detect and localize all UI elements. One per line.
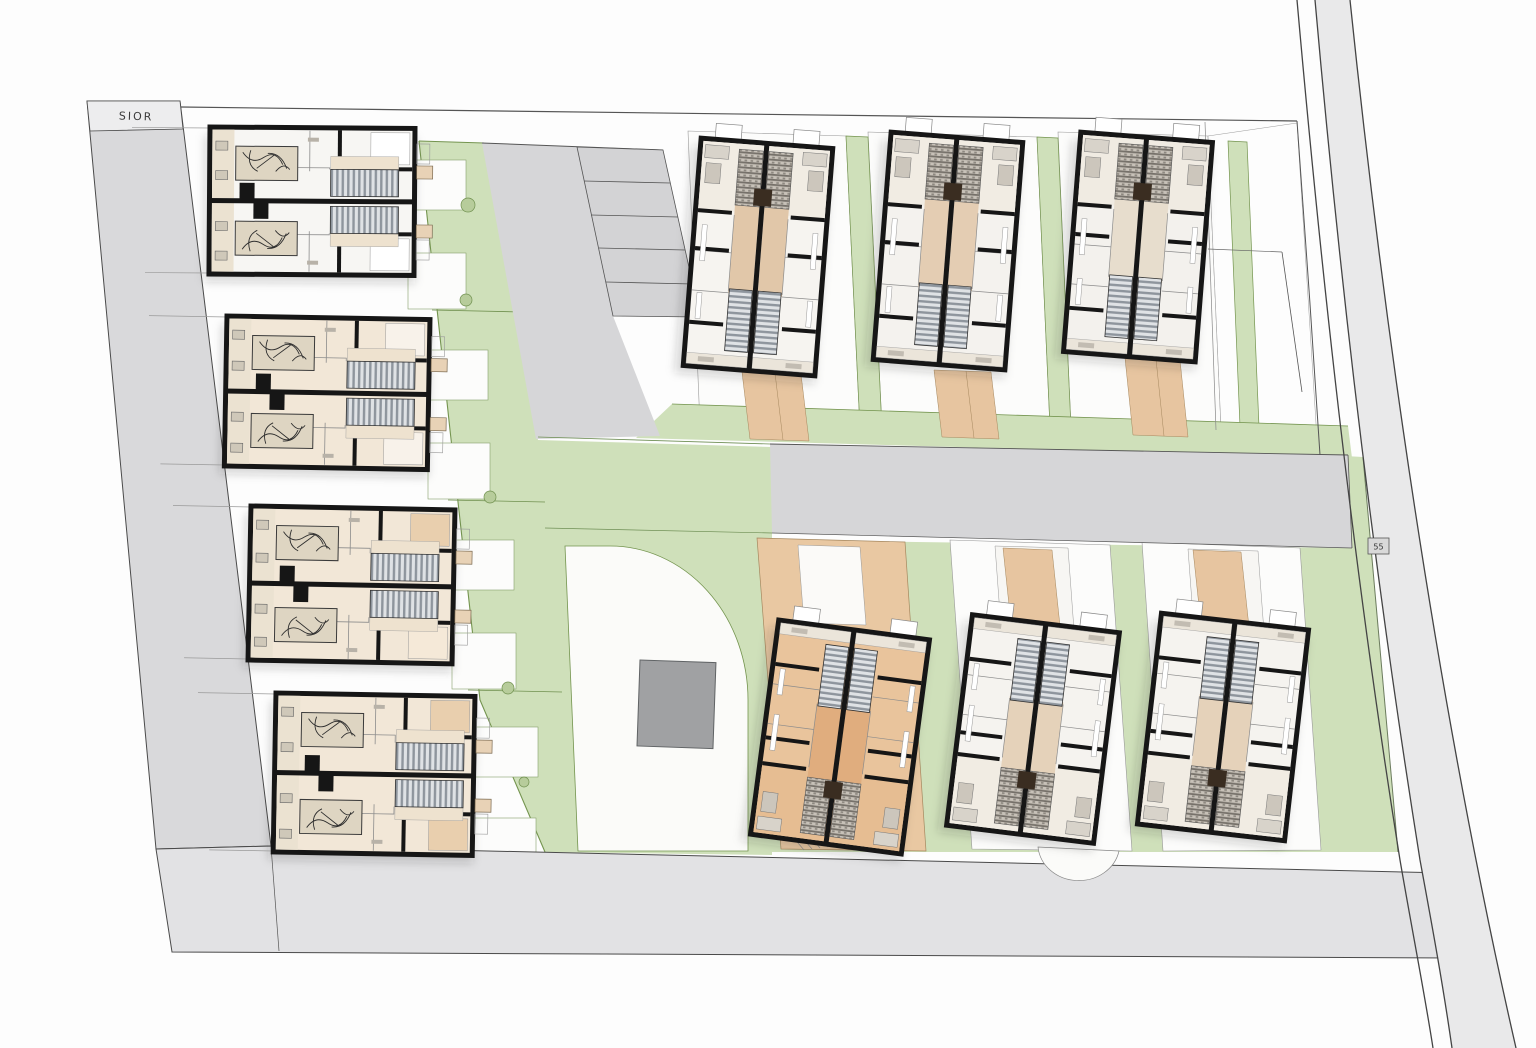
site-plan: SIOR 55 (0, 0, 1536, 1048)
wardrobe (216, 141, 228, 150)
walkway-n3 (1125, 358, 1188, 437)
walkway-n2 (934, 370, 999, 439)
wardrobe (232, 361, 244, 370)
building-plan-S2 (938, 598, 1122, 851)
patio-notch (408, 253, 466, 309)
patio-notch (474, 818, 536, 856)
stairs (330, 206, 398, 233)
stairs (346, 398, 414, 426)
entry-step (431, 359, 447, 372)
garden-shed-body (637, 660, 716, 749)
wardrobe (281, 743, 293, 752)
building-plan-S3 (1129, 597, 1311, 849)
chimney (256, 374, 271, 390)
bush (460, 294, 472, 306)
stairs (943, 285, 971, 349)
wardrobe (280, 794, 292, 803)
stairs (396, 743, 464, 771)
chimney (280, 566, 295, 582)
plot-marker-label: 55 (1373, 543, 1383, 552)
site-plan-canvas: SIOR 55 (0, 0, 1536, 1048)
wardrobe (256, 553, 268, 562)
chimney (823, 780, 843, 799)
wardrobe (254, 637, 266, 646)
building-plan-N2 (865, 116, 1024, 378)
bed (276, 525, 339, 560)
stairs (725, 289, 753, 353)
bed (251, 413, 314, 448)
bed (235, 221, 297, 255)
bed (252, 335, 315, 370)
chimney (293, 586, 308, 602)
stairs (347, 361, 415, 389)
entry-step (430, 418, 446, 431)
entry-step (475, 799, 491, 812)
bush (502, 682, 514, 694)
bed (236, 146, 298, 180)
entry-step (456, 551, 472, 564)
bush (461, 198, 475, 212)
building-plan-S1 (742, 603, 932, 862)
chimney (253, 203, 268, 219)
patio-notch (452, 633, 516, 689)
building-plan-N1 (675, 122, 834, 384)
bed (300, 799, 363, 834)
wardrobe (255, 604, 267, 613)
wardrobe (215, 251, 227, 260)
chimney (305, 755, 320, 771)
stairs (915, 283, 943, 347)
patio-notch (452, 540, 514, 590)
chimney (269, 394, 284, 410)
chimney (1207, 769, 1227, 788)
chimney (753, 189, 772, 207)
wardrobe (216, 171, 228, 180)
road-link-east (770, 444, 1352, 548)
chimney (1017, 771, 1037, 790)
chimney (1133, 182, 1152, 200)
wardrobe (231, 443, 243, 452)
bed (301, 712, 364, 747)
bush (484, 491, 496, 503)
entry-step (455, 610, 471, 623)
wardrobe (231, 412, 243, 421)
stairs (753, 291, 781, 355)
stairs (331, 169, 399, 196)
wardrobe (215, 222, 227, 231)
stairs (371, 553, 440, 581)
garden-shed (637, 660, 716, 749)
road-name-label: SIOR (119, 110, 154, 124)
room (428, 818, 468, 851)
building-plan-N3 (1055, 116, 1214, 370)
stairs (370, 590, 439, 618)
bed (274, 607, 337, 642)
wardrobe (257, 520, 269, 529)
stairs (1105, 275, 1133, 339)
stairs (1134, 277, 1162, 341)
patio-notch (428, 443, 490, 499)
wardrobe (233, 330, 245, 339)
chimney (318, 775, 333, 791)
chimney (943, 183, 962, 201)
entry-step (476, 740, 492, 753)
entry-step (416, 225, 432, 238)
bush (519, 777, 529, 787)
chimney (240, 183, 255, 199)
stairs (395, 780, 463, 808)
room (430, 700, 470, 733)
patio-notch (428, 350, 488, 400)
entry-step (417, 166, 433, 179)
wardrobe (282, 707, 294, 716)
wardrobe (279, 829, 291, 838)
